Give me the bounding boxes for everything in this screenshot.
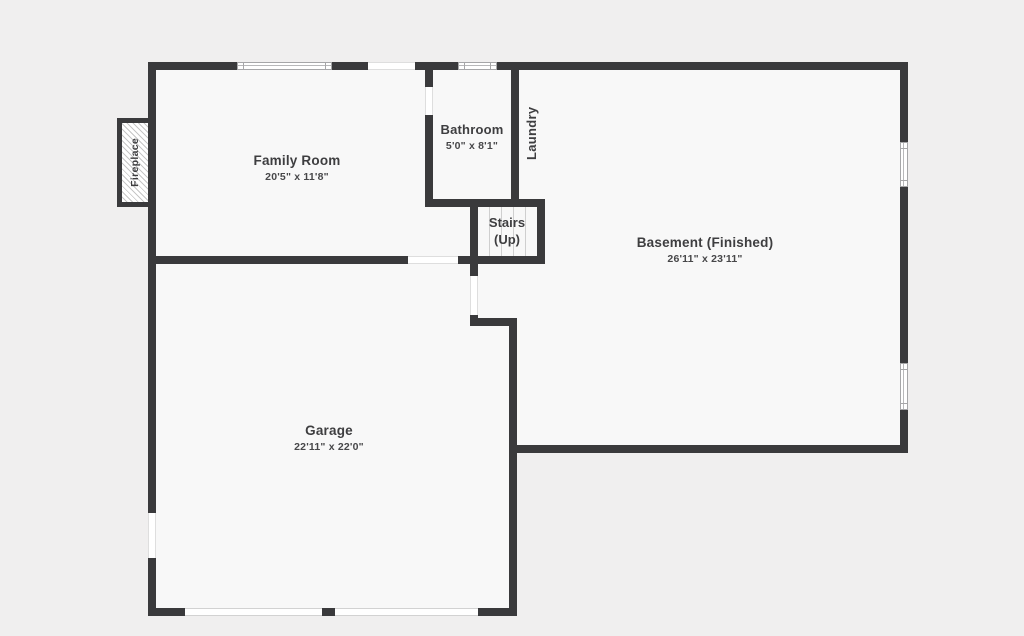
room-dimensions: 22'11" x 22'0" [229,441,429,453]
opening-top-wall [368,62,415,70]
room-name: Basement (Finished) [595,235,815,250]
door-bathroom [425,87,433,115]
garage-door-opening-right [335,608,478,616]
door-familyroom-garage [408,256,458,264]
opening-garage-side [148,513,156,558]
floor-plan: Fireplace Family Room 20'5" x 11'8" Bath… [0,0,1024,636]
fireplace-label: Fireplace [129,138,141,187]
stairs-label-line1: Stairs [467,214,547,231]
wall-garage-right [509,318,517,616]
wall-basement-bottom [509,445,908,453]
stairs-label-line2: (Up) [467,231,547,248]
room-label-bathroom: Bathroom 5'0" x 8'1" [412,122,532,152]
room-dimensions: 26'11" x 23'11" [595,253,815,265]
room-name: Garage [229,423,429,438]
room-label-basement: Basement (Finished) 26'11" x 23'11" [595,235,815,265]
room-label-garage: Garage 22'11" x 22'0" [229,423,429,453]
room-dimensions: 20'5" x 11'8" [197,171,397,183]
room-label-family-room: Family Room 20'5" x 11'8" [197,153,397,183]
garage-door-opening-left [185,608,322,616]
window-basement-upper [900,142,908,187]
wall-bathroom-bottom [425,199,545,207]
room-label-laundry: Laundry [524,98,539,168]
window-bathroom [458,62,497,70]
room-label-stairs: Stairs (Up) [467,214,547,248]
room-name: Family Room [197,153,397,168]
fireplace: Fireplace [117,118,153,207]
window-basement-lower [900,363,908,410]
door-stairs-landing [470,276,478,315]
window-familyroom [237,62,332,70]
wall-familyroom-bottom [148,256,545,264]
room-name: Bathroom [412,122,532,137]
room-dimensions: 5'0" x 8'1" [412,140,532,152]
